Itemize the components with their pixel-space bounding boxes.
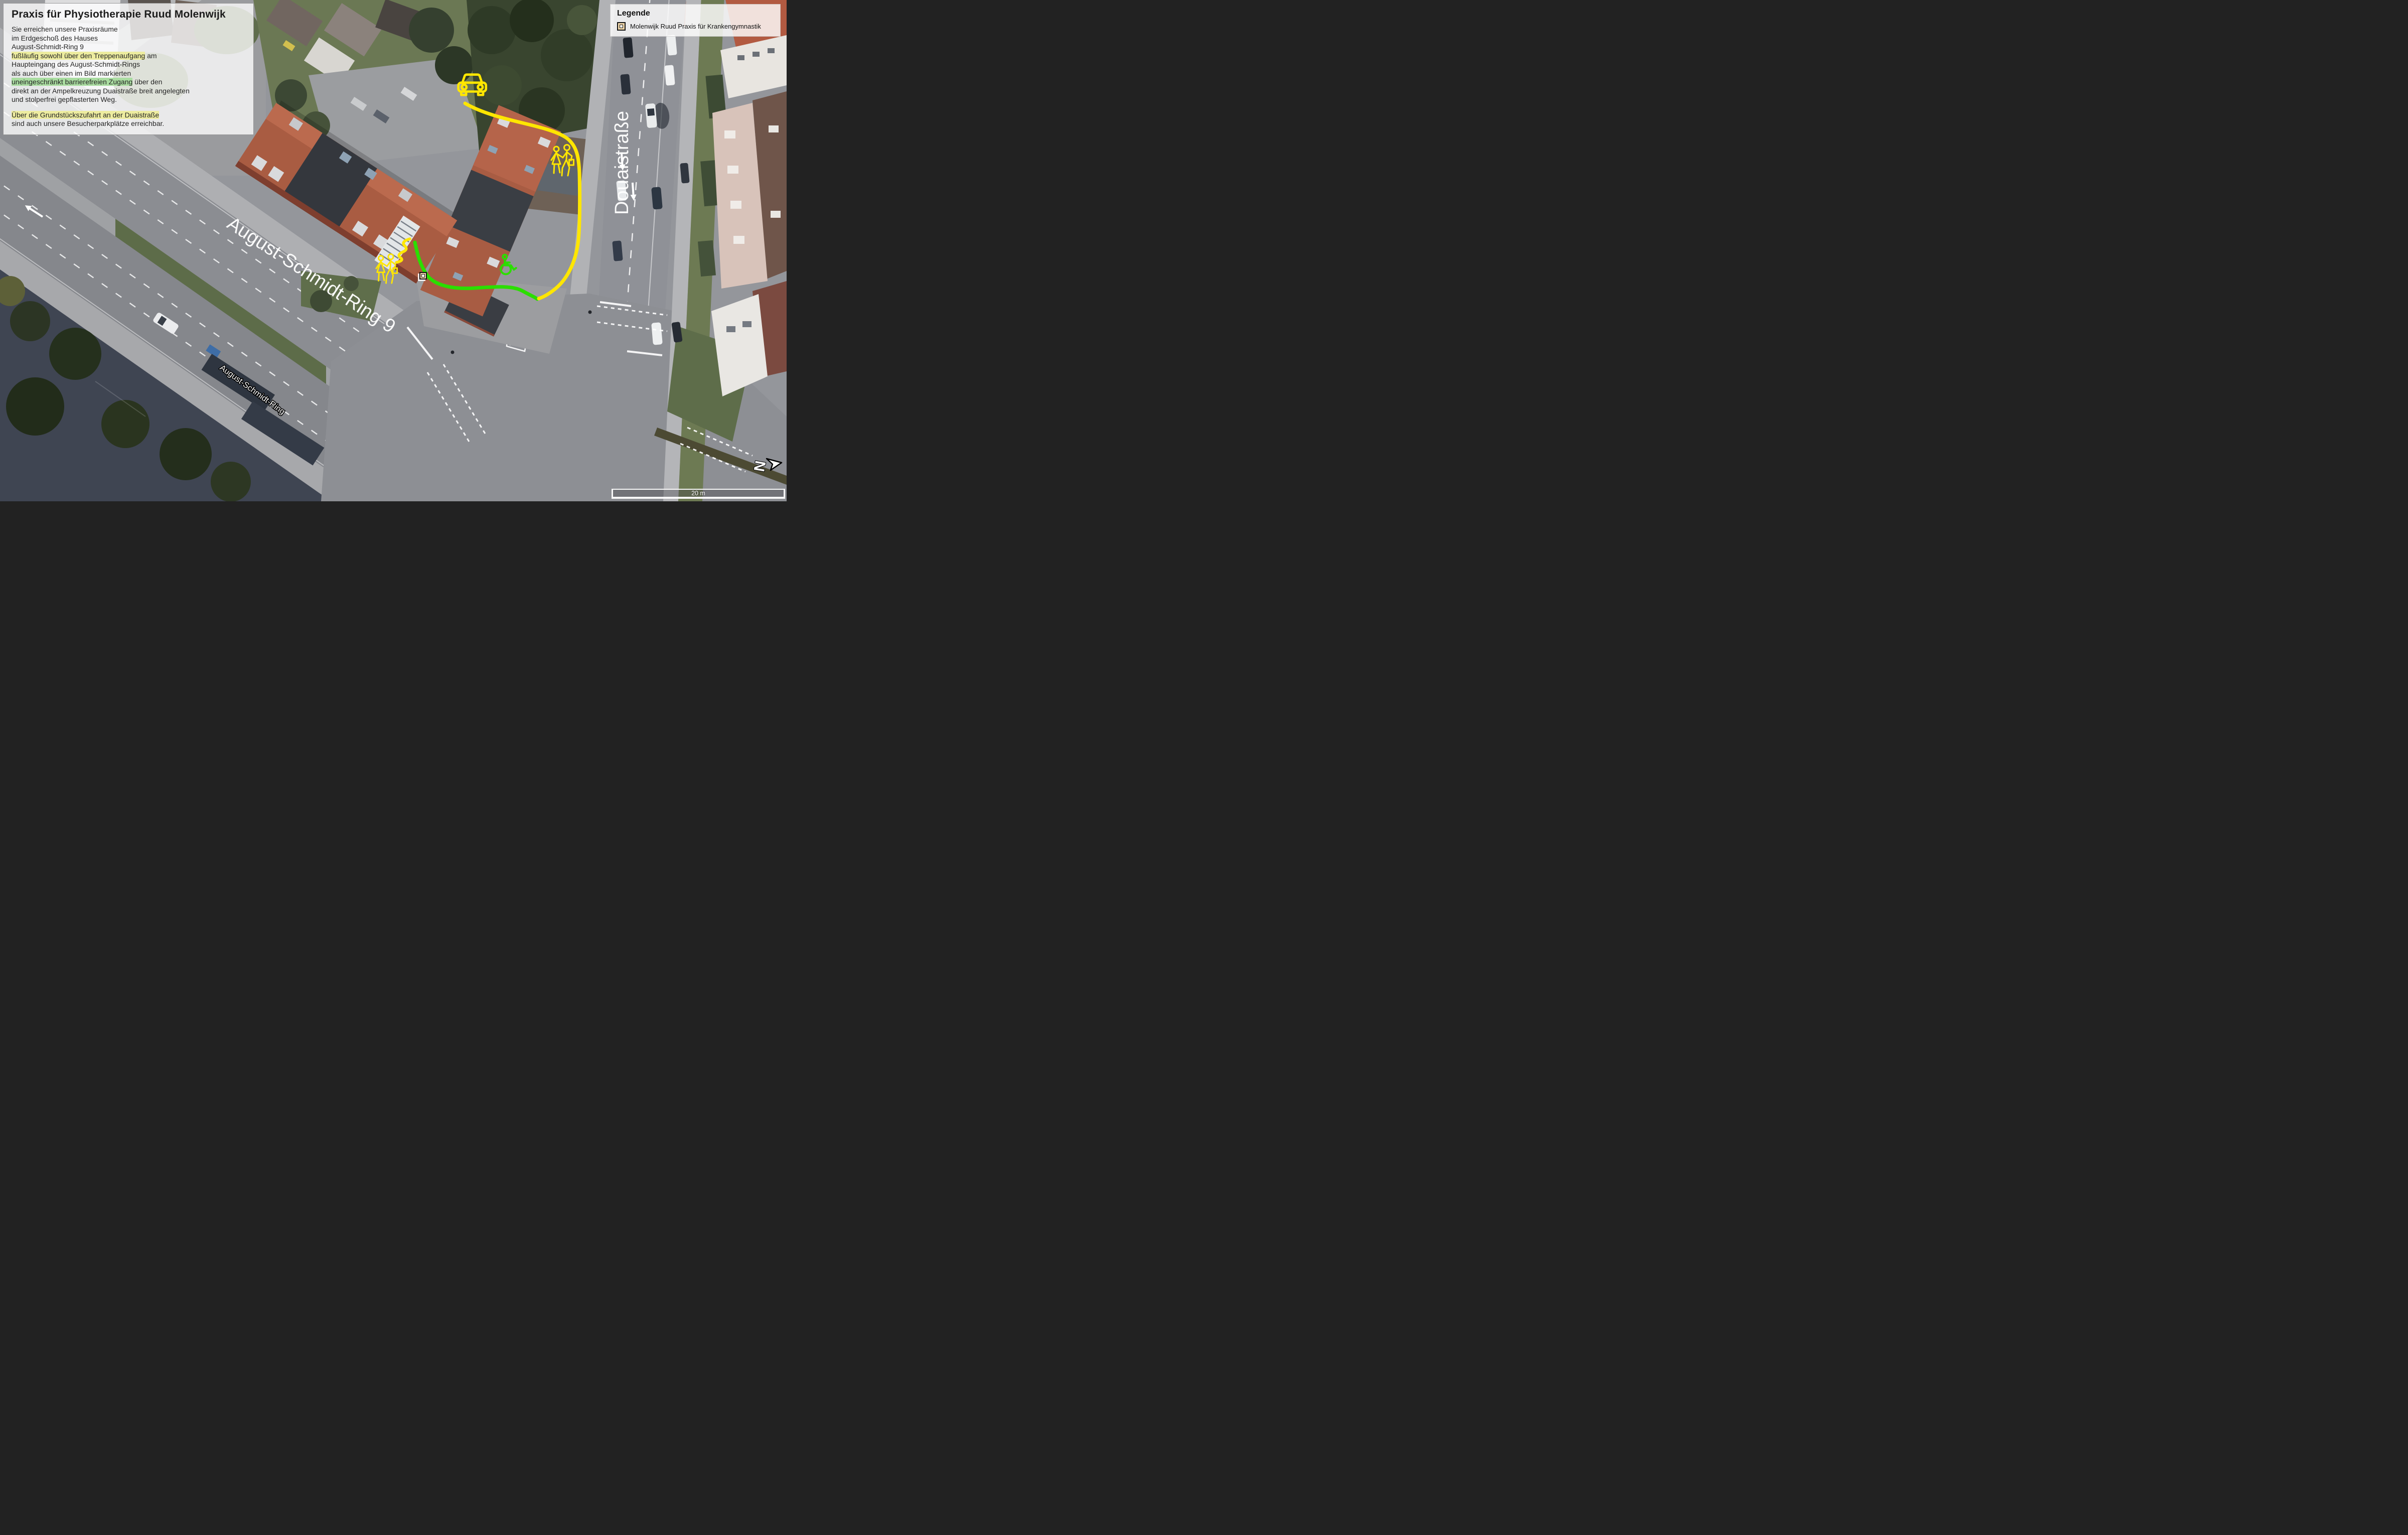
info-line: direkt an der Ampelkreuzung Duaistraße b… <box>12 87 245 96</box>
info-box: Praxis für Physiotherapie Ruud Molenwijk… <box>3 3 254 135</box>
info-text-segment: und stolperfrei gepflasterten Weg. <box>12 95 117 103</box>
info-line: im Erdgeschoß des Hauses <box>12 34 245 43</box>
highlighted-text: Über die Grundstückszufahrt an der Duais… <box>12 111 159 119</box>
info-line: fußläufig sowohl über den Treppenaufgang… <box>12 52 245 61</box>
info-text-segment: über den <box>132 78 162 86</box>
info-title: Praxis für Physiotherapie Ruud Molenwijk <box>12 9 245 21</box>
scale-bar: 20 m <box>612 489 785 499</box>
street-label-douaistrasse: Douaistraße <box>612 111 633 215</box>
info-text-segment: sind auch unsere Besucherparkplätze erre… <box>12 119 164 127</box>
highlighted-text: uneingeschränkt barrierefreien Zugang <box>12 78 132 86</box>
info-line: Sie erreichen unsere Praxisräume <box>12 25 245 34</box>
info-line: als auch über einen im Bild markierten <box>12 69 245 78</box>
praxis-marker-icon <box>617 22 626 31</box>
info-line: uneingeschränkt barrierefreien Zugang üb… <box>12 78 245 87</box>
info-text-segment: als auch über einen im Bild markierten <box>12 69 131 77</box>
flyer-page: August-Schmidt-Ring 9 Douaistraße August… <box>0 0 787 501</box>
info-text-segment: Sie erreichen unsere Praxisräume <box>12 25 118 33</box>
legend-item-label: Molenwijk Ruud Praxis für Krankengymnast… <box>630 23 761 30</box>
highlighted-text: fußläufig sowohl über den Treppenaufgang <box>12 52 145 60</box>
info-line: Haupteingang des August-Schmidt-Rings <box>12 60 245 69</box>
legend-item: Molenwijk Ruud Praxis für Krankengymnast… <box>617 22 774 31</box>
info-text-segment: Haupteingang des August-Schmidt-Rings <box>12 60 140 68</box>
info-text-segment: am <box>145 52 157 60</box>
info-line: sind auch unsere Besucherparkplätze erre… <box>12 119 245 128</box>
scale-bar-label: 20 m <box>691 490 705 497</box>
info-text-segment: im Erdgeschoß des Hauses <box>12 34 98 42</box>
info-line: Über die Grundstückszufahrt an der Duais… <box>12 111 245 120</box>
info-line: und stolperfrei gepflasterten Weg. <box>12 95 245 104</box>
info-line <box>12 104 245 111</box>
praxis-marker-icon <box>419 272 427 280</box>
info-text-segment: August-Schmidt-Ring 9 <box>12 43 84 51</box>
praxis-marker-inner <box>620 25 623 28</box>
info-line: August-Schmidt-Ring 9 <box>12 43 245 52</box>
legend-box: Legende Molenwijk Ruud Praxis für Kranke… <box>610 4 781 37</box>
legend-title: Legende <box>617 9 774 18</box>
praxis-marker-inner <box>421 274 425 277</box>
info-text-segment: direkt an der Ampelkreuzung Duaistraße b… <box>12 87 190 95</box>
info-box-text: Sie erreichen unsere Praxisräumeim Erdge… <box>12 25 245 128</box>
